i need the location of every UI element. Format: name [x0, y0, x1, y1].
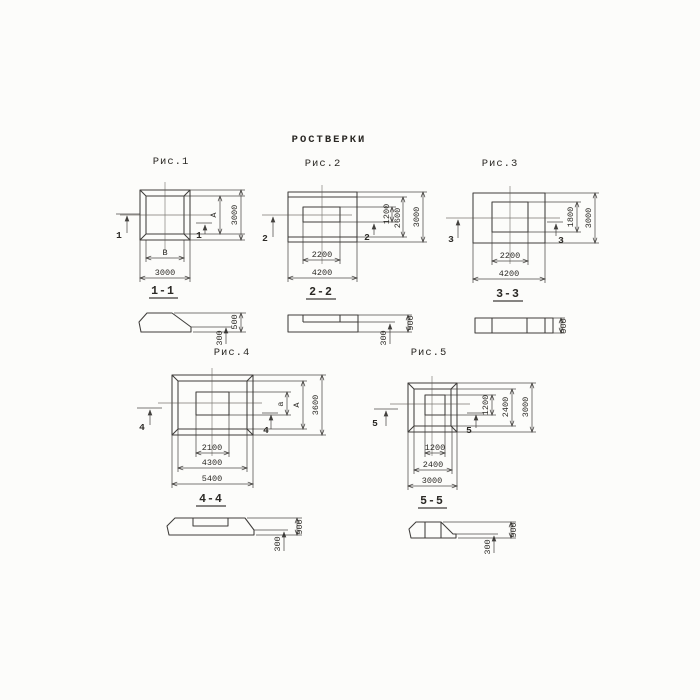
- section-1-1-dim-total: 500: [230, 314, 240, 329]
- drawing-sheet: РОСТВЕРКИ Рис.1 А 3000 В 3000 1 1 1-1 50…: [0, 0, 700, 700]
- section-2-2-dim-step: 300: [379, 330, 389, 345]
- figure-2: Рис.2 1200 2600 3000 2200 4200 2 2 2-2: [262, 158, 427, 299]
- figure-1: Рис.1 А 3000 В 3000 1 1 1-1: [116, 156, 245, 298]
- figure-5-dim-inner-height: 1200: [481, 395, 491, 415]
- figure-5-dim-inner-width: 1200: [425, 443, 445, 453]
- figure-4-cut-mark-right: 4: [263, 425, 269, 436]
- section-4-4-view: 900 300: [167, 518, 305, 552]
- figure-2-dim-total-height: 3000: [412, 207, 422, 227]
- figure-2-cut-mark-left: 2: [262, 233, 268, 244]
- figure-3-cut-mark-right: 3: [558, 235, 564, 246]
- figure-5: Рис.5 1200 2400 3000 1200 2400 3000 5 5 …: [372, 347, 536, 508]
- section-2-2-view: 900 300: [288, 315, 416, 346]
- figure-4-dim-mid-height-label: А: [292, 402, 302, 408]
- section-5-5-dim-step: 300: [483, 539, 493, 554]
- drawing-canvas: РОСТВЕРКИ Рис.1 А 3000 В 3000 1 1 1-1 50…: [0, 0, 700, 700]
- figure-3-dim-total-width: 4200: [499, 269, 519, 279]
- figure-1-dim-width-total: 3000: [155, 268, 175, 278]
- figure-5-dim-mid-width: 2400: [423, 460, 443, 470]
- figure-2-dim-inner-width: 2200: [312, 250, 332, 260]
- figure-4-dim-mid-width: 4300: [202, 458, 222, 468]
- figure-2-dim-mid-height: 2600: [393, 208, 403, 228]
- figure-4-plan-outline: [172, 375, 253, 435]
- figure-1-cut-mark-right: 1: [196, 230, 202, 241]
- section-4-4-dim-total: 900: [295, 519, 305, 534]
- section-5-5-view: 900 300: [409, 522, 519, 555]
- figure-4-extension-lines: [137, 375, 326, 488]
- figure-5-dim-mid-height: 2400: [501, 397, 511, 417]
- figure-4-dim-total-width: 5400: [202, 474, 222, 484]
- figure-1-extension-lines: [116, 190, 245, 282]
- section-1-1-dim-step: 300: [215, 330, 225, 345]
- section-2-2-dim-total: 900: [406, 315, 416, 330]
- figure-2-dim-total-width: 4200: [312, 268, 332, 278]
- figure-2-cut-mark-right: 2: [364, 232, 370, 243]
- figure-3-dim-total-height: 3000: [584, 208, 594, 228]
- section-3-3-dim-total: 900: [559, 318, 569, 333]
- section-2-2-title: 2-2: [309, 286, 333, 299]
- section-1-1-title: 1-1: [151, 285, 175, 298]
- figure-5-dim-total-width: 3000: [422, 476, 442, 486]
- drawing-title: РОСТВЕРКИ: [292, 134, 367, 146]
- figure-1-dim-height-label: А: [209, 212, 219, 218]
- section-5-5-shape: [409, 522, 456, 538]
- figure-5-dim-total-height: 3000: [521, 397, 531, 417]
- figure-4-dim-inner-height-label: а: [276, 401, 286, 406]
- figure-3-cut-mark-left: 3: [448, 234, 454, 245]
- section-3-3-view: 900: [475, 318, 569, 334]
- section-2-2-extension-lines: [358, 315, 412, 332]
- section-5-5-extension-lines: [443, 522, 516, 538]
- section-3-3-title: 3-3: [496, 288, 520, 301]
- figure-4-dim-inner-width: 2100: [202, 443, 222, 453]
- figure-5-caption: Рис.5: [411, 347, 448, 359]
- figure-3-dim-inner-height: 1800: [566, 207, 576, 227]
- figure-5-plan-outline: [408, 383, 457, 432]
- section-5-5-dim-total: 900: [509, 522, 519, 537]
- figure-5-cut-mark-left: 5: [372, 418, 378, 429]
- section-5-5-title: 5-5: [420, 495, 444, 508]
- section-4-4-dim-step: 300: [273, 536, 283, 551]
- figure-3: Рис.3 1800 3000 2200 4200 3 3 3-3: [446, 158, 599, 301]
- figure-3-dim-inner-width: 2200: [500, 251, 520, 261]
- figure-4-dim-total-height: 3600: [311, 395, 321, 415]
- section-4-4-extension-lines: [247, 518, 302, 535]
- section-1-1-shape: [139, 313, 191, 332]
- figure-4-caption: Рис.4: [214, 347, 251, 359]
- figure-5-cut-mark-right: 5: [466, 425, 472, 436]
- figure-2-dim-inner-height: 1200: [382, 204, 392, 224]
- figure-2-caption: Рис.2: [305, 158, 342, 170]
- figure-3-caption: Рис.3: [482, 158, 519, 170]
- figure-1-dim-height-total: 3000: [230, 205, 240, 225]
- figure-1-cut-mark-left: 1: [116, 230, 122, 241]
- section-4-4-title: 4-4: [199, 493, 223, 506]
- section-2-2-shape: [288, 315, 358, 332]
- section-4-4-shape: [167, 518, 254, 535]
- figure-1-caption: Рис.1: [153, 156, 190, 168]
- section-1-1-view: 500 300: [139, 313, 246, 346]
- figure-4-cut-mark-left: 4: [139, 422, 145, 433]
- figure-4: Рис.4 а А 3600 2100 4300 5400 4 4 4-4: [137, 347, 326, 506]
- figure-2-plan-outline: [288, 192, 357, 242]
- section-3-3-shape: [475, 318, 553, 333]
- figure-1-dim-width-label: В: [162, 248, 167, 258]
